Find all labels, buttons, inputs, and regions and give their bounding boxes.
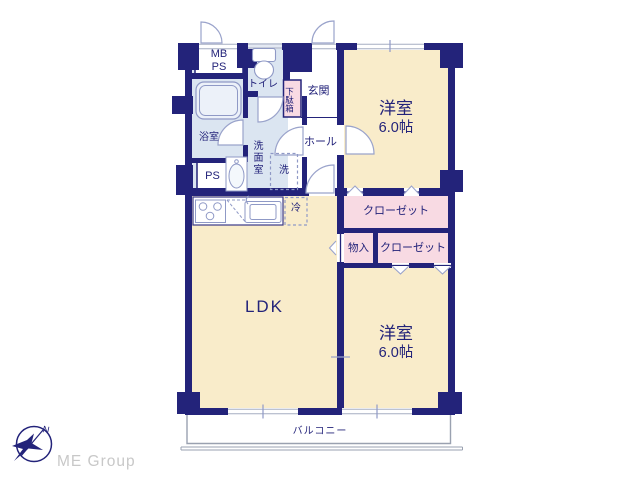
shoe-cabinet-box: [284, 80, 302, 117]
bird-icon: [12, 434, 43, 462]
pillar: [283, 43, 312, 72]
mbps-door-arc: [201, 22, 222, 43]
floor-plan-page: N MB PS トイレ 下駄箱 玄関 洋室 6.0帖 浴室 洗面室 洗 ホール …: [0, 0, 640, 480]
opening-entrance-door: [312, 43, 336, 50]
logo-text: ME Group: [57, 453, 136, 471]
pillar: [172, 96, 193, 114]
ps-box: [197, 161, 228, 190]
pillar: [178, 43, 199, 70]
wall: [337, 228, 455, 233]
wall: [337, 262, 344, 408]
entrance-door-arc: [312, 21, 334, 43]
pillar: [440, 43, 463, 68]
kitchen-icon: [193, 196, 283, 225]
wall: [192, 73, 248, 79]
wall: [337, 155, 344, 192]
pillar: [176, 165, 193, 195]
pillar: [438, 392, 462, 414]
wall: [298, 408, 342, 415]
room-ldk-floor: [192, 196, 337, 408]
storage-floor: [344, 233, 373, 263]
wall: [243, 91, 258, 97]
mbps-box: [195, 46, 243, 74]
wall: [302, 96, 307, 125]
wall: [409, 263, 434, 268]
room-bedroom2-floor: [344, 268, 448, 408]
bathtub-icon: [196, 82, 241, 119]
wall: [192, 158, 228, 163]
floor-plan-drawing: N: [0, 0, 640, 480]
closet1-floor: [344, 196, 448, 228]
compass: N: [12, 424, 52, 461]
balcony-outline: [181, 415, 463, 450]
vanity-sink-icon: [226, 157, 247, 191]
pillar: [177, 392, 200, 414]
closet2-floor: [378, 233, 448, 263]
wall: [337, 263, 392, 268]
room-bedroom1-floor: [344, 50, 448, 188]
wall: [451, 263, 455, 268]
wall: [363, 188, 404, 196]
opening-mbps-door: [199, 43, 237, 50]
wall: [337, 43, 344, 125]
wall: [373, 233, 378, 263]
pillar: [440, 170, 463, 192]
